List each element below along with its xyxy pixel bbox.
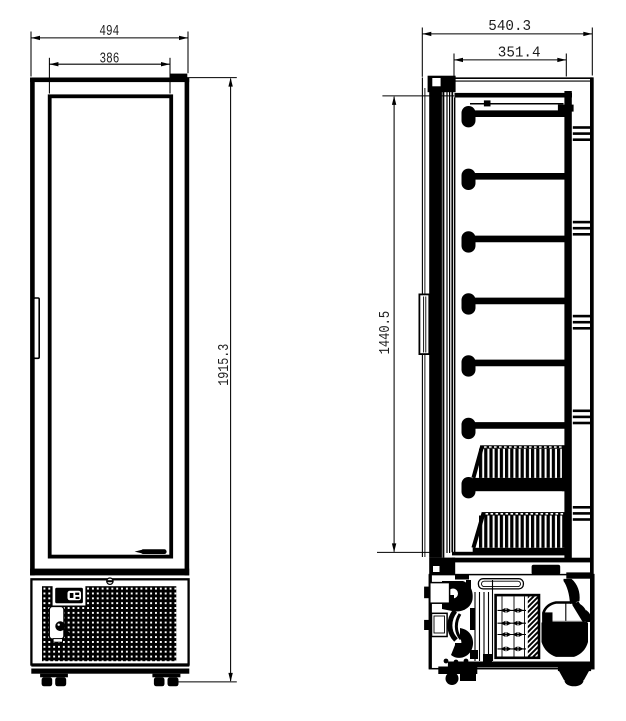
svg-text:351.4: 351.4 xyxy=(498,45,541,62)
svg-text:386: 386 xyxy=(100,51,120,68)
svg-text:494: 494 xyxy=(99,23,119,40)
svg-text:1915.3: 1915.3 xyxy=(216,344,233,386)
svg-text:540.3: 540.3 xyxy=(488,18,531,35)
svg-text:1440.5: 1440.5 xyxy=(377,311,394,355)
